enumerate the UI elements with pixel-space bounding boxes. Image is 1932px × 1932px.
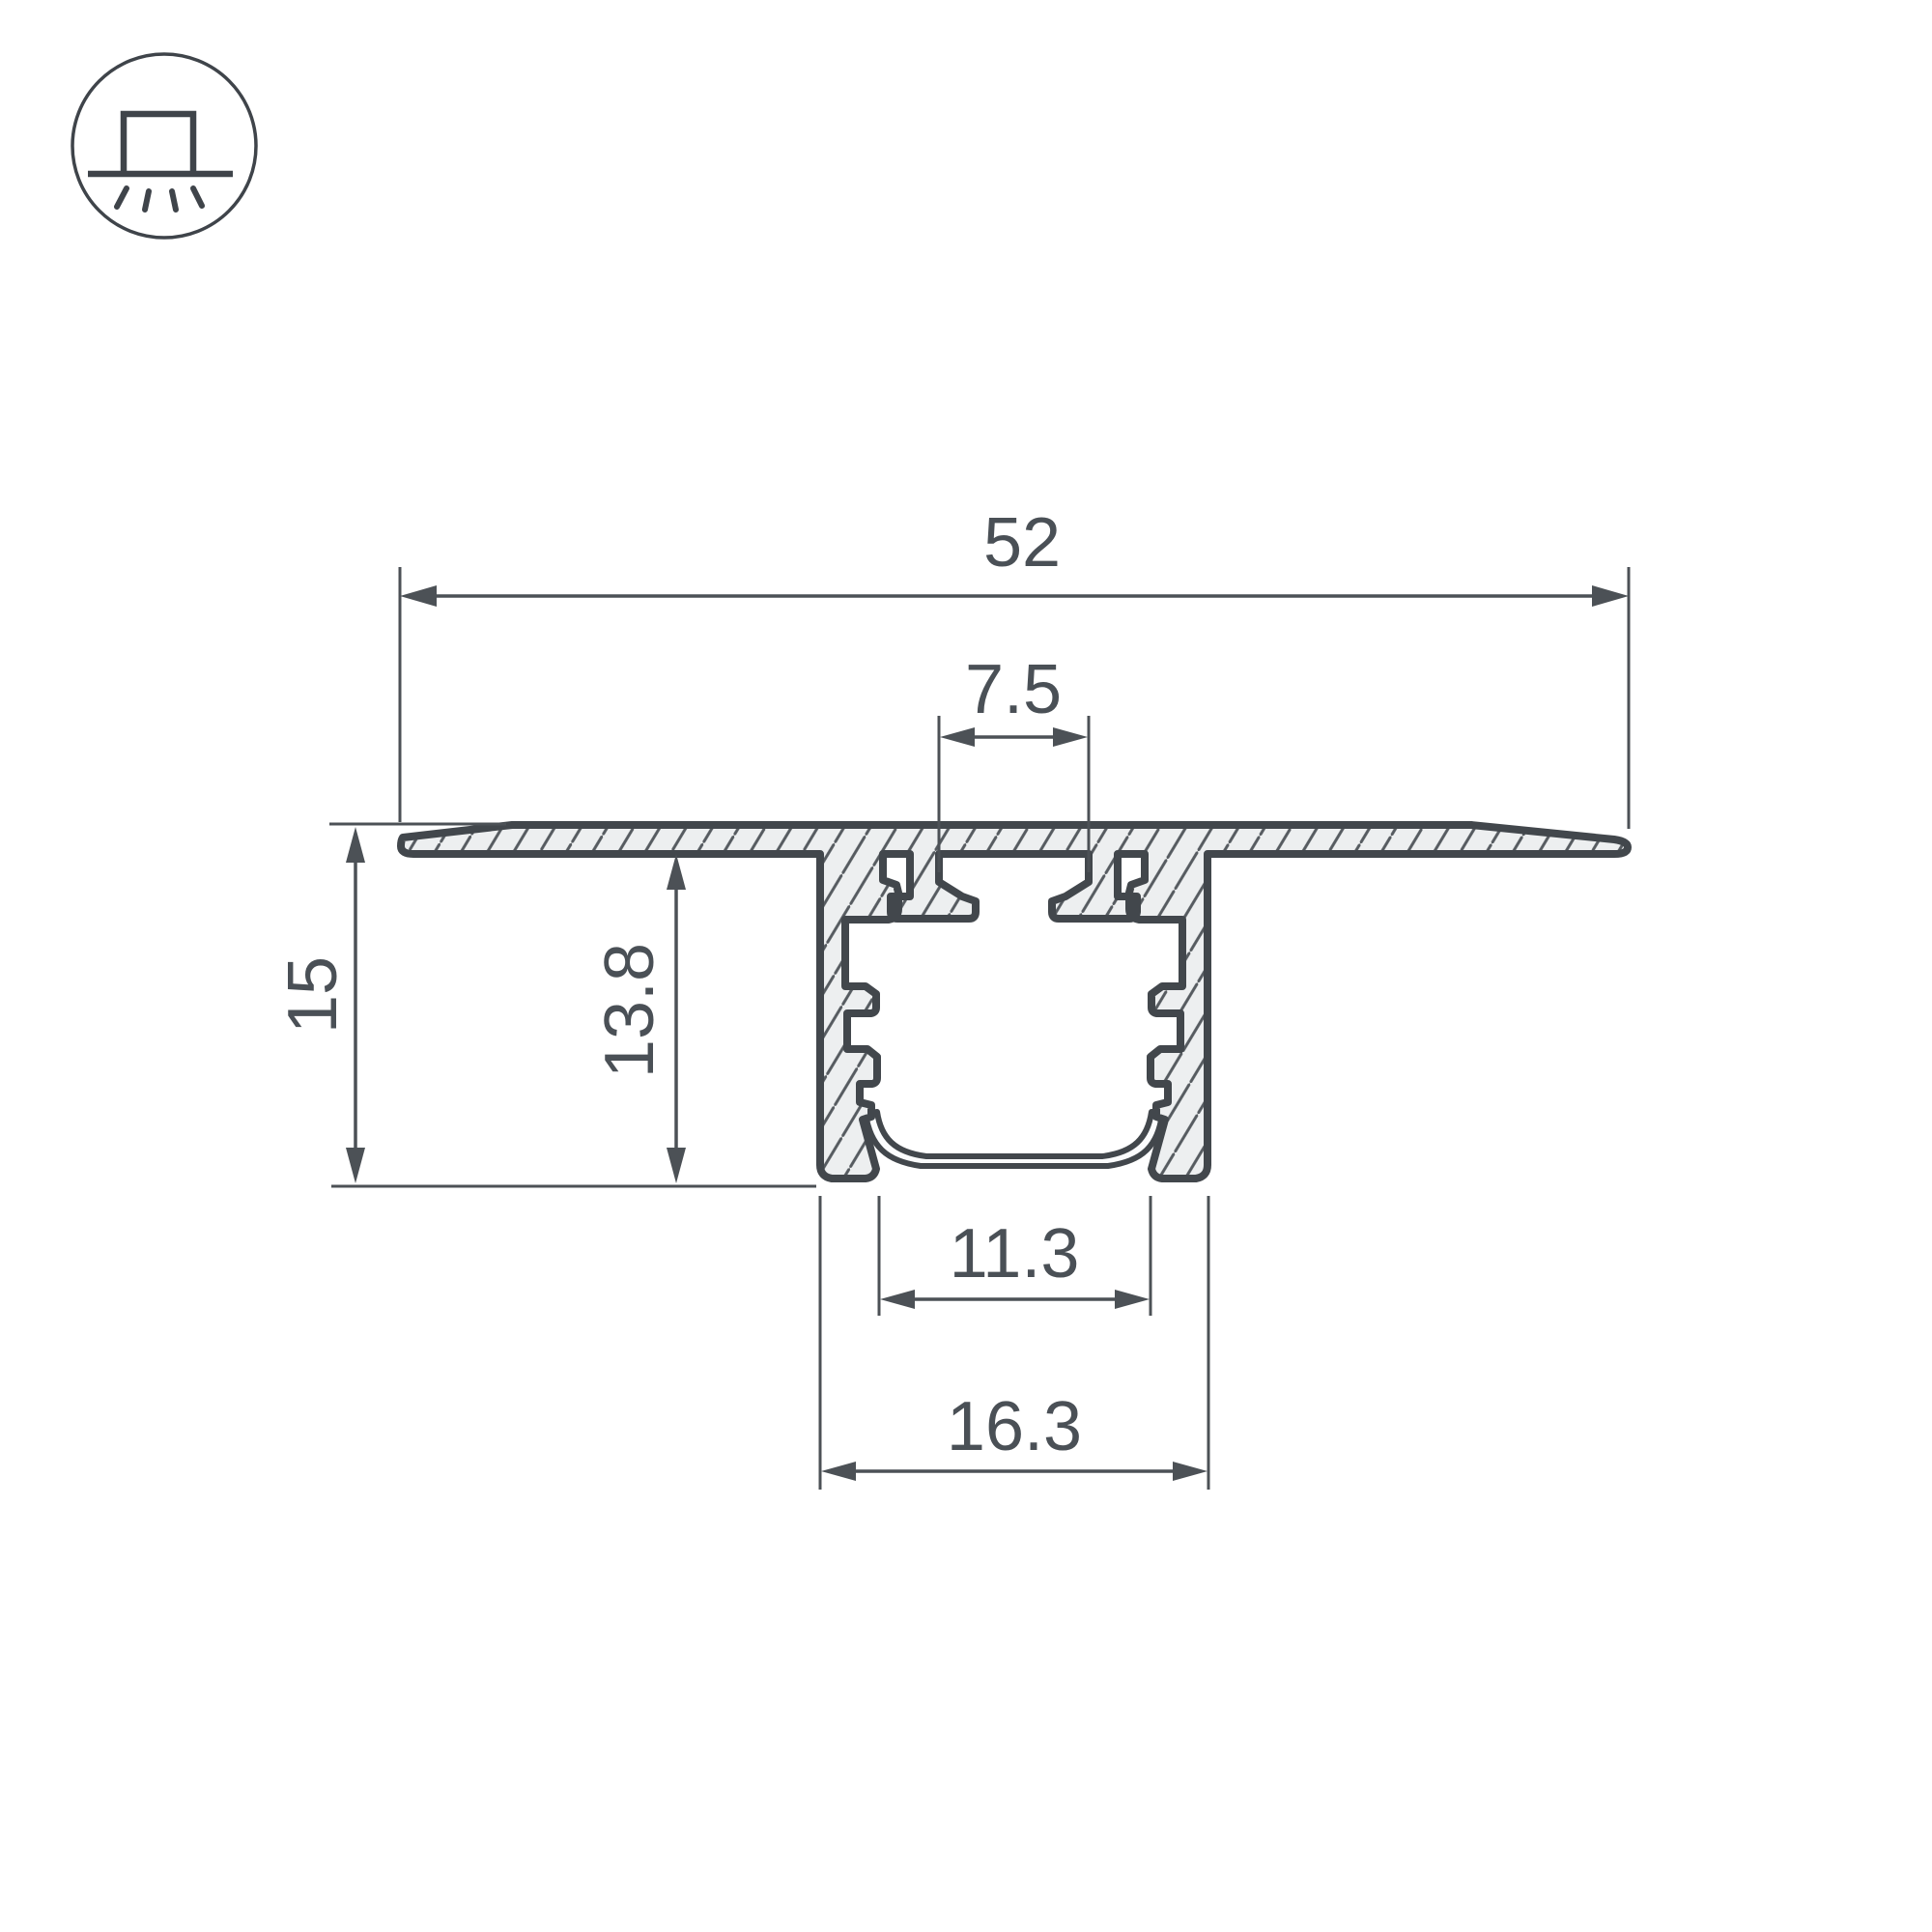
dimension-label-overall-width: 52 <box>983 504 1061 582</box>
diffuser-lens <box>866 1112 1162 1166</box>
dimension-label-overall-height: 15 <box>274 956 352 1034</box>
technical-drawing-canvas: 52 7.5 15 13.8 <box>0 0 1932 1932</box>
arrowhead-left-icon <box>400 585 437 607</box>
arrowhead-right-icon <box>1592 585 1629 607</box>
dimension-label-channel-body-width: 16.3 <box>947 1388 1082 1465</box>
dimension-inner-opening-width: 11.3 <box>879 1196 1151 1316</box>
icon-fixture-box <box>124 114 193 174</box>
arrowhead-left-icon <box>821 1462 856 1481</box>
arrowhead-down-icon <box>346 1148 365 1183</box>
technical-drawing-page: 52 7.5 15 13.8 <box>0 0 1932 1932</box>
dimension-label-inner-opening-width: 11.3 <box>950 1215 1080 1293</box>
dimension-label-top-slot-width: 7.5 <box>965 651 1062 728</box>
arrowhead-down-icon <box>667 1148 686 1183</box>
icon-light-rays <box>117 188 202 210</box>
icon-circle <box>72 54 256 238</box>
arrowhead-up-icon <box>346 827 365 863</box>
dimension-recess-depth: 13.8 <box>591 854 686 1183</box>
dimension-label-recess-depth: 13.8 <box>591 943 668 1078</box>
arrowhead-left-icon <box>880 1290 915 1309</box>
arrowhead-right-icon <box>1053 727 1088 747</box>
profile-cross-section <box>401 825 1628 1179</box>
arrowhead-right-icon <box>1173 1462 1207 1481</box>
arrowhead-left-icon <box>940 727 975 747</box>
arrowhead-right-icon <box>1115 1290 1150 1309</box>
recessed-light-icon <box>72 54 256 238</box>
arrowhead-up-icon <box>667 854 686 890</box>
dimension-overall-height: 15 <box>274 824 816 1186</box>
